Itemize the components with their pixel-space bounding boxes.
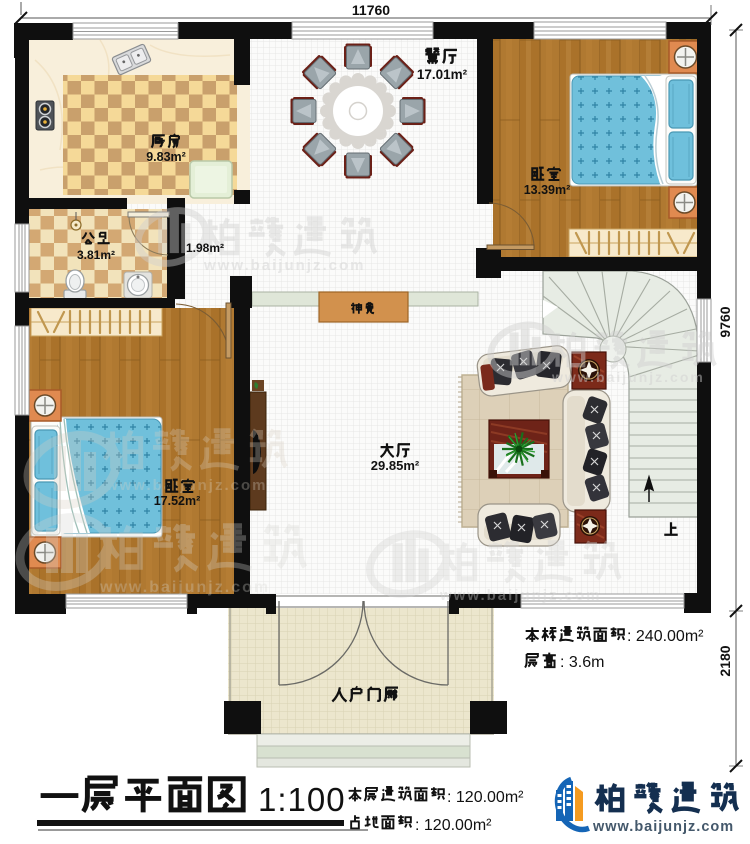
svg-text:9760: 9760 xyxy=(717,306,733,337)
svg-text:www.baijunjz.com: www.baijunjz.com xyxy=(203,257,365,274)
svg-text:: 120.00m²: : 120.00m² xyxy=(447,789,524,806)
svg-text:11760: 11760 xyxy=(352,2,390,18)
svg-text:9.83m²: 9.83m² xyxy=(146,150,186,164)
svg-text:3.81m²: 3.81m² xyxy=(77,248,115,262)
svg-text:www.baijunjz.com: www.baijunjz.com xyxy=(551,369,705,385)
svg-text:www.baijunjz.com: www.baijunjz.com xyxy=(592,819,734,835)
svg-text:: 120.00m²: : 120.00m² xyxy=(415,817,492,834)
svg-text:29.85m²: 29.85m² xyxy=(371,458,420,473)
svg-text:17.01m²: 17.01m² xyxy=(417,67,468,82)
svg-text:17.52m²: 17.52m² xyxy=(154,494,201,508)
svg-text:: 240.00m²: : 240.00m² xyxy=(627,628,704,645)
svg-text:13.39m²: 13.39m² xyxy=(524,183,571,197)
svg-text:: 3.6m: : 3.6m xyxy=(560,654,604,671)
svg-text:www.baijunjz.com: www.baijunjz.com xyxy=(99,579,270,596)
svg-text:1.98m²: 1.98m² xyxy=(186,241,224,255)
svg-text:www.baijunjz.com: www.baijunjz.com xyxy=(439,587,601,604)
svg-text:1:100: 1:100 xyxy=(258,781,346,818)
svg-text:2180: 2180 xyxy=(717,645,733,676)
